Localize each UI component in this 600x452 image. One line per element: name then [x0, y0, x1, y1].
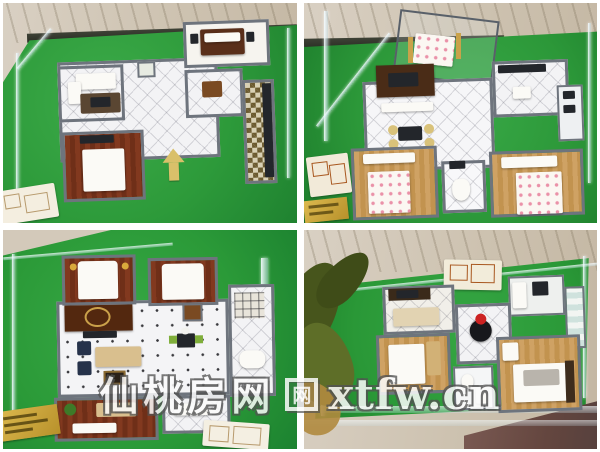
bed-white: [162, 263, 205, 300]
sofa: [75, 73, 116, 90]
dining-table: [177, 333, 195, 347]
bed-blanket-gray: [523, 368, 560, 385]
headboard: [564, 360, 574, 402]
kitchen-table: [512, 86, 530, 99]
wall-painting: [182, 303, 202, 321]
bed-white: [82, 148, 125, 191]
plan-mark: [449, 264, 467, 280]
photo-bottom-right-model: [304, 230, 598, 450]
dining-table-dark: [397, 126, 421, 141]
tv: [396, 289, 418, 298]
model-apartment: [35, 239, 278, 439]
plaque-text-line: [3, 412, 37, 420]
model-apartment: [28, 17, 292, 216]
plaque-text-line: [5, 427, 33, 434]
plan-mark: [470, 263, 494, 282]
bathtub: [451, 178, 470, 201]
plaque-text-line: [309, 210, 333, 215]
photo-collage: 仙桃房网 网 xtfw.cn: [0, 0, 600, 452]
plan-mark: [209, 425, 230, 442]
armchair-navy: [77, 361, 91, 375]
shower: [475, 387, 488, 403]
chair: [387, 125, 397, 135]
chair: [423, 124, 433, 134]
bed-white: [78, 260, 119, 299]
info-plaque: [304, 197, 349, 223]
circle-motif: [84, 306, 110, 326]
floorplan-card: [3, 183, 59, 223]
wall-art: [137, 61, 156, 78]
armchair-navy: [77, 341, 91, 355]
model-apartment: [359, 250, 583, 428]
dining-table: [202, 81, 223, 98]
appliance: [563, 105, 575, 113]
balcony-sofa: [96, 402, 136, 417]
flowers-white: [181, 327, 190, 334]
cabinet: [512, 282, 527, 308]
nightstand: [190, 34, 198, 44]
glass-edge-left: [16, 53, 19, 193]
bed-pillows: [204, 32, 240, 42]
glass-edge-right: [588, 23, 591, 183]
lamp: [122, 262, 129, 269]
plan-mark: [3, 193, 21, 209]
direction-arrow: [162, 148, 185, 181]
plan-mark: [311, 161, 329, 177]
appliance: [532, 281, 548, 296]
wardrobe: [501, 155, 557, 168]
plant-pot: [64, 403, 76, 415]
tray-items: [72, 422, 116, 433]
coffee-table: [90, 97, 110, 108]
floorplan-card: [202, 419, 270, 449]
toilet: [461, 373, 473, 387]
plan-mark: [328, 163, 346, 185]
chair-green: [195, 335, 203, 343]
photo-bottom-left-model: [3, 230, 297, 450]
glass-edge-left: [12, 254, 15, 434]
arrow-stem: [169, 162, 180, 180]
tv: [388, 72, 418, 87]
media-console: [381, 102, 433, 113]
bed-pink-floral: [515, 171, 562, 215]
sofa: [392, 307, 439, 327]
photo-top-left-model: [3, 3, 297, 223]
wardrobe-tan: [426, 341, 441, 375]
bed-white: [388, 343, 425, 384]
nightstand: [246, 32, 254, 42]
bath-door: [449, 161, 465, 170]
plan-mark: [232, 425, 261, 445]
kitchen-counter: [497, 64, 545, 74]
red-flowers: [475, 313, 486, 324]
appliance: [562, 91, 574, 99]
dresser: [502, 342, 519, 361]
bed-pink-floral: [367, 171, 410, 214]
plaque-text-line: [308, 203, 338, 209]
shelf-grid: [234, 292, 264, 319]
bathtub: [239, 350, 265, 368]
tv-console: [83, 330, 117, 338]
plan-mark: [24, 192, 51, 214]
arrow-head-icon: [162, 148, 184, 163]
bathroom: [452, 365, 494, 410]
model-apartment: [318, 28, 586, 222]
coffee-table: [104, 370, 126, 384]
photo-top-right-model: [304, 3, 598, 223]
dresser: [362, 152, 414, 164]
floorplan-card: [305, 153, 352, 198]
tv-cabinet: [80, 135, 114, 144]
sofa-tan: [95, 346, 141, 367]
bench: [174, 403, 208, 416]
lamp: [70, 263, 77, 270]
chair-green: [169, 335, 177, 343]
